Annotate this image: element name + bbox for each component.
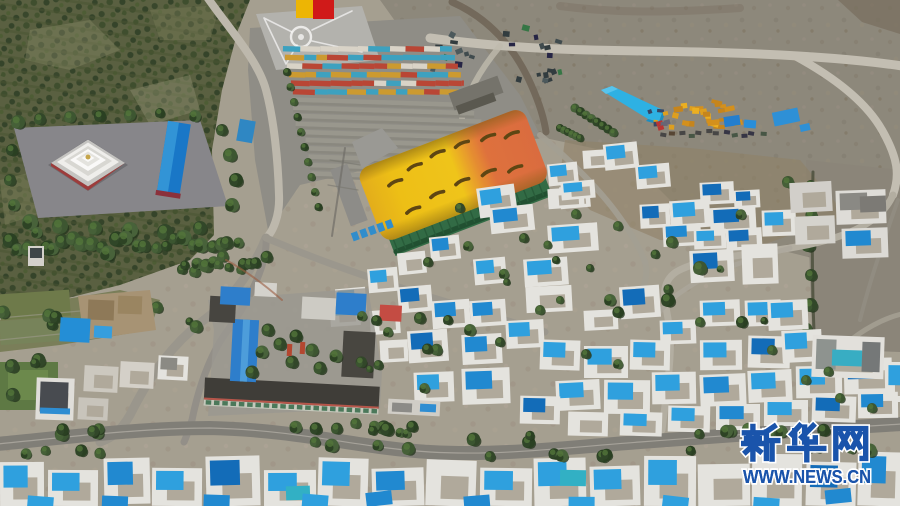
svg-text:WWW.NEWS.CN: WWW.NEWS.CN <box>743 466 871 487</box>
